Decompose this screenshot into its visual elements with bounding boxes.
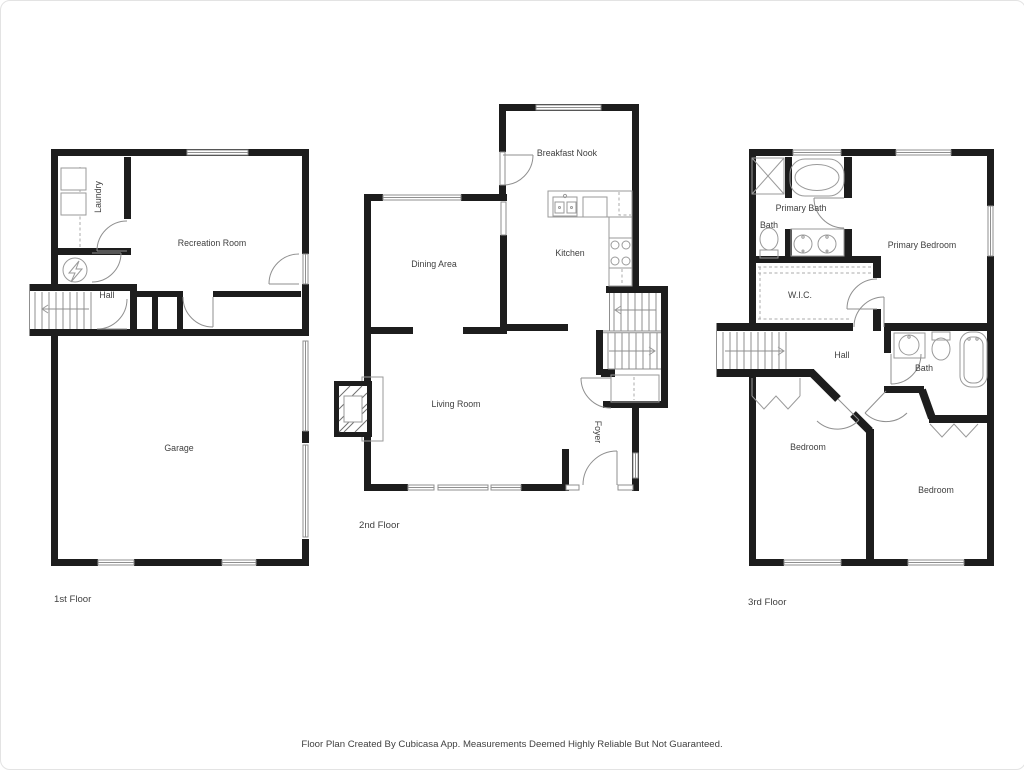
room-label-primary-bedroom: Primary Bedroom xyxy=(888,240,956,250)
room-label-bath-upper: Bath xyxy=(760,220,778,230)
room-label-bath-lower: Bath xyxy=(915,363,933,373)
first-floor-plan: Laundry Recreation Room Hall Garage 1st … xyxy=(29,149,309,605)
room-label-hall-1f: Hall xyxy=(99,290,114,300)
floor-plan-page: Laundry Recreation Room Hall Garage 1st … xyxy=(0,0,1024,770)
stair-arrow-icon xyxy=(725,347,784,355)
room-label-living: Living Room xyxy=(432,399,481,409)
kitchen-sink-icon xyxy=(553,194,577,216)
wic-shelves xyxy=(758,267,871,319)
room-label-recreation: Recreation Room xyxy=(178,238,246,248)
room-label-dining: Dining Area xyxy=(411,259,457,269)
room-label-hall-3f: Hall xyxy=(834,350,849,360)
floor-caption-2nd: 2nd Floor xyxy=(359,520,400,531)
walls xyxy=(364,104,668,491)
closet-bifold-icon xyxy=(930,424,978,437)
room-label-bedroom-right: Bedroom xyxy=(918,485,954,495)
toilet-icon xyxy=(760,228,778,258)
third-floor-plan: Bath Primary Bath Primary Bedroom W.I.C.… xyxy=(716,149,994,608)
stairs-up-icon xyxy=(717,323,787,377)
double-sink-icon xyxy=(791,229,844,256)
foyer-closet xyxy=(611,375,659,402)
room-label-foyer: Foyer xyxy=(593,421,603,444)
washer-icon xyxy=(61,168,86,190)
closet-bifold-icon xyxy=(752,378,800,409)
floor-caption-3rd: 3rd Floor xyxy=(748,597,787,608)
laundry-appliances xyxy=(61,167,86,247)
room-label-breakfast-nook: Breakfast Nook xyxy=(537,148,598,158)
stairs-down-icon xyxy=(30,284,92,336)
shower-icon xyxy=(752,158,784,194)
room-label-laundry: Laundry xyxy=(93,181,103,213)
fridge-icon xyxy=(583,197,607,217)
dryer-icon xyxy=(61,193,86,215)
water-heater-icon xyxy=(63,258,87,282)
fireplace-icon xyxy=(334,377,383,441)
staircase xyxy=(603,293,661,369)
room-label-garage: Garage xyxy=(164,443,193,453)
floor-caption-1st: 1st Floor xyxy=(54,594,92,605)
sink-icon xyxy=(894,333,925,358)
bathtub-icon xyxy=(960,332,987,387)
kitchen-counter xyxy=(548,191,632,286)
room-label-primary-bath: Primary Bath xyxy=(776,203,827,213)
floor-plan-drawing: Laundry Recreation Room Hall Garage 1st … xyxy=(1,1,1024,769)
stove-icon xyxy=(609,238,632,268)
room-label-wic: W.I.C. xyxy=(788,290,812,300)
bathtub-icon xyxy=(790,159,844,196)
toilet-icon xyxy=(932,332,950,360)
second-floor-plan: Breakfast Nook Dining Area Kitchen Livin… xyxy=(334,104,668,531)
room-label-kitchen: Kitchen xyxy=(555,248,584,258)
room-label-bedroom-left: Bedroom xyxy=(790,442,826,452)
disclaimer-caption: Floor Plan Created By Cubicasa App. Meas… xyxy=(301,739,722,750)
entry-door-arc xyxy=(583,451,617,485)
